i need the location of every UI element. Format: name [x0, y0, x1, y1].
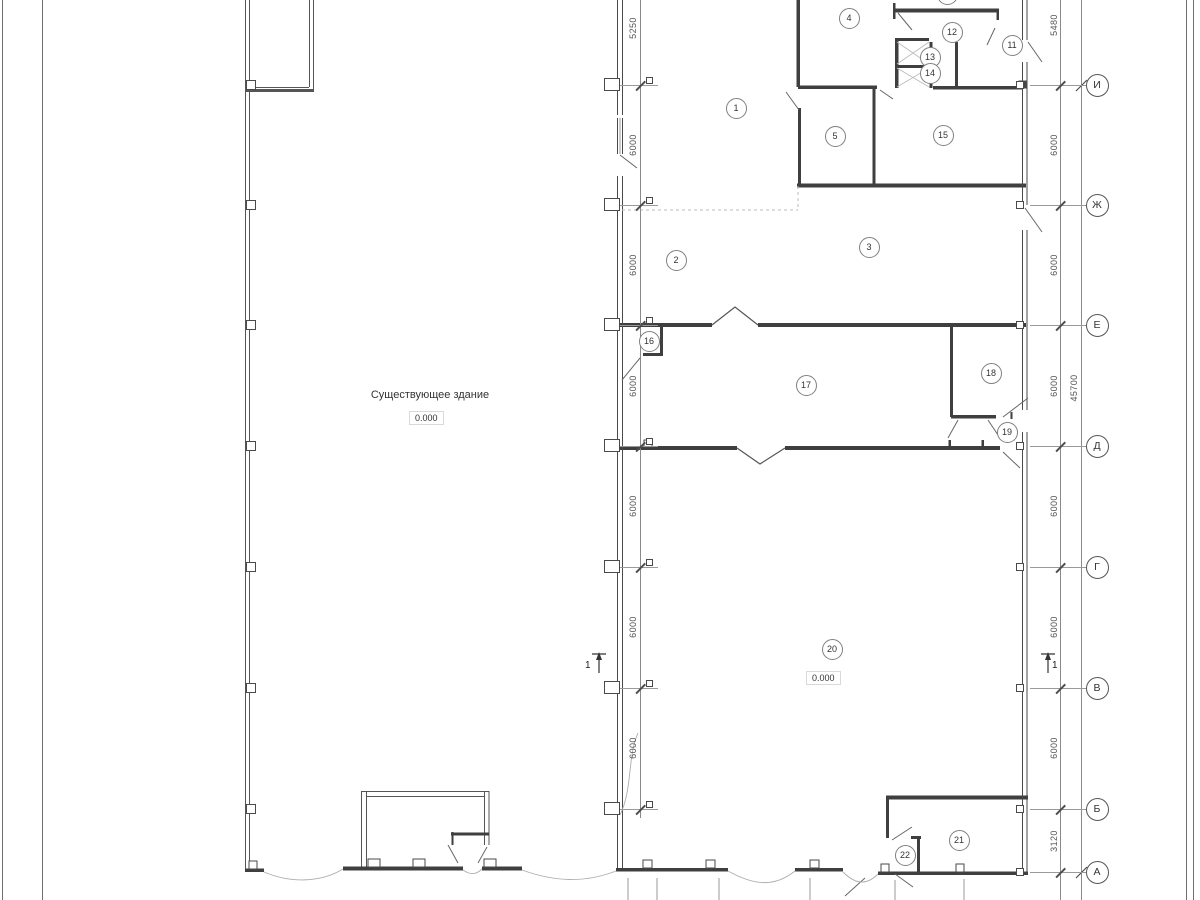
column-symbol [368, 859, 380, 867]
axis-bubble: Г [1086, 556, 1109, 579]
column-symbol [1016, 81, 1024, 89]
axis-bubble: Ж [1086, 194, 1109, 217]
break-line [522, 870, 616, 880]
room-number-bubble: 19 [997, 422, 1018, 443]
wall-path [246, 0, 250, 870]
dimension-label: 6000 [627, 245, 639, 285]
column-symbol [1016, 201, 1024, 209]
stair-annex-walls [250, 0, 314, 92]
column-symbol [1016, 684, 1024, 692]
axis-bubble: Д [1086, 435, 1109, 458]
column-symbol [484, 859, 496, 867]
column-symbol [646, 680, 653, 687]
column-symbol [246, 683, 256, 693]
column-symbol [246, 200, 256, 210]
column-symbol [643, 860, 652, 868]
door-swing [892, 827, 912, 840]
room-number-bubble: 14 [920, 63, 941, 84]
column-symbol [1016, 321, 1024, 329]
door-swings [448, 13, 1042, 896]
room-number-bubble: 3 [859, 237, 880, 258]
column-symbol [604, 560, 620, 573]
column-symbol [246, 80, 256, 90]
column-symbol [706, 860, 715, 868]
dimension-label: 6000 [1048, 607, 1060, 647]
column-symbol [646, 197, 653, 204]
break-line [463, 869, 482, 874]
column-symbol [646, 438, 653, 445]
room-number-bubble: 22 [895, 845, 916, 866]
floor-plan-linework [0, 0, 1200, 900]
column-symbol [646, 559, 653, 566]
dimension-label: 5250 [627, 8, 639, 48]
frame-line [3, 0, 1194, 900]
room-number-bubble: 2 [666, 250, 687, 271]
dimension-label: 6000 [627, 125, 639, 165]
dimension-label: 6000 [627, 728, 639, 768]
door-swing [1028, 42, 1042, 62]
room-number-bubble: 20 [822, 639, 843, 660]
column-symbol [1016, 563, 1024, 571]
column-symbol [1016, 868, 1024, 876]
dimension-label: 6000 [627, 366, 639, 406]
dimension-label: 6000 [1048, 486, 1060, 526]
room-number-bubble: 12 [942, 22, 963, 43]
section-cut-label-left: 1 [585, 660, 591, 671]
column-symbol [604, 78, 620, 91]
column-symbol [1016, 805, 1024, 813]
room-number-bubble: 1 [726, 98, 747, 119]
break-lines [264, 733, 878, 883]
room-number-bubble: 21 [949, 830, 970, 851]
room-number-bubble: 5 [825, 126, 846, 147]
gate-symbol [712, 307, 758, 325]
room-number-bubble: 16 [639, 331, 660, 352]
dimension-label: 6000 [627, 607, 639, 647]
column-symbol [604, 198, 620, 211]
column-symbol [246, 441, 256, 451]
room-number-bubble: 4 [839, 8, 860, 29]
axis-bubble: А [1086, 861, 1109, 884]
double-line-walls [618, 0, 1028, 873]
column-symbol [956, 864, 964, 872]
grid-stub [628, 878, 964, 900]
column-symbol [246, 804, 256, 814]
column-symbol [604, 318, 620, 331]
section-arrowhead [596, 652, 602, 660]
door-swing [448, 845, 458, 863]
door-swing [895, 874, 913, 887]
column-symbol [881, 864, 889, 872]
existing-building-elevation: 0.000 [409, 411, 444, 425]
axis-bubble: Е [1086, 314, 1109, 337]
column-symbol [413, 859, 425, 867]
column-symbol [646, 77, 653, 84]
section-arrowhead [1045, 652, 1051, 660]
right-wall [1023, 0, 1028, 873]
dimension-label: 5480 [1048, 5, 1060, 45]
gate-symbol [737, 448, 785, 464]
dimension-label: 6000 [1048, 125, 1060, 165]
gate-symbols [712, 307, 785, 464]
room-number-bubble: 17 [796, 375, 817, 396]
axis-bubble: Б [1086, 798, 1109, 821]
dimension-label: 6000 [1048, 728, 1060, 768]
column-symbol [646, 801, 653, 808]
dimension-label: 6000 [1048, 245, 1060, 285]
door-swing [1003, 452, 1020, 468]
door-swing [880, 90, 893, 99]
door-swing [786, 92, 799, 110]
column-symbol [604, 439, 620, 452]
frame-border-lines [3, 0, 1194, 900]
column-symbol [1016, 442, 1024, 450]
section-cut-label-right: 1 [1052, 660, 1058, 671]
break-line [264, 869, 343, 880]
door-swing [1003, 398, 1028, 417]
column-symbol [249, 861, 257, 869]
hall-elevation: 0.000 [806, 671, 841, 685]
door-swing [898, 13, 912, 30]
floor-plan-sheet: Существующее здание 0.000 0.000 1 1 1234… [0, 0, 1200, 900]
break-line [728, 871, 795, 883]
room-number-bubble: 11 [1002, 35, 1023, 56]
dimension-label: 3120 [1048, 821, 1060, 861]
column-symbol [810, 860, 819, 868]
door-swing [987, 28, 995, 45]
column-symbol [646, 317, 653, 324]
overall-dimension-label: 45700 [1068, 368, 1080, 408]
column-symbol [246, 562, 256, 572]
dimension-label: 6000 [627, 486, 639, 526]
column-symbol [246, 320, 256, 330]
room-number-bubble: 15 [933, 125, 954, 146]
dimension-label: 6000 [1048, 366, 1060, 406]
grid-stubs [628, 878, 964, 900]
column-symbol [604, 681, 620, 694]
door-swing [948, 420, 958, 438]
column-symbol [604, 802, 620, 815]
tambour-walls [361, 791, 489, 868]
axis-bubble: В [1086, 677, 1109, 700]
existing-building-label: Существующее здание [350, 389, 510, 401]
existing-building-walls [245, 0, 489, 870]
room-number-bubble: 18 [981, 363, 1002, 384]
break-line [843, 872, 878, 882]
wall-stub [950, 440, 983, 446]
axis-bubble: И [1086, 74, 1109, 97]
door-swing [1025, 208, 1042, 232]
